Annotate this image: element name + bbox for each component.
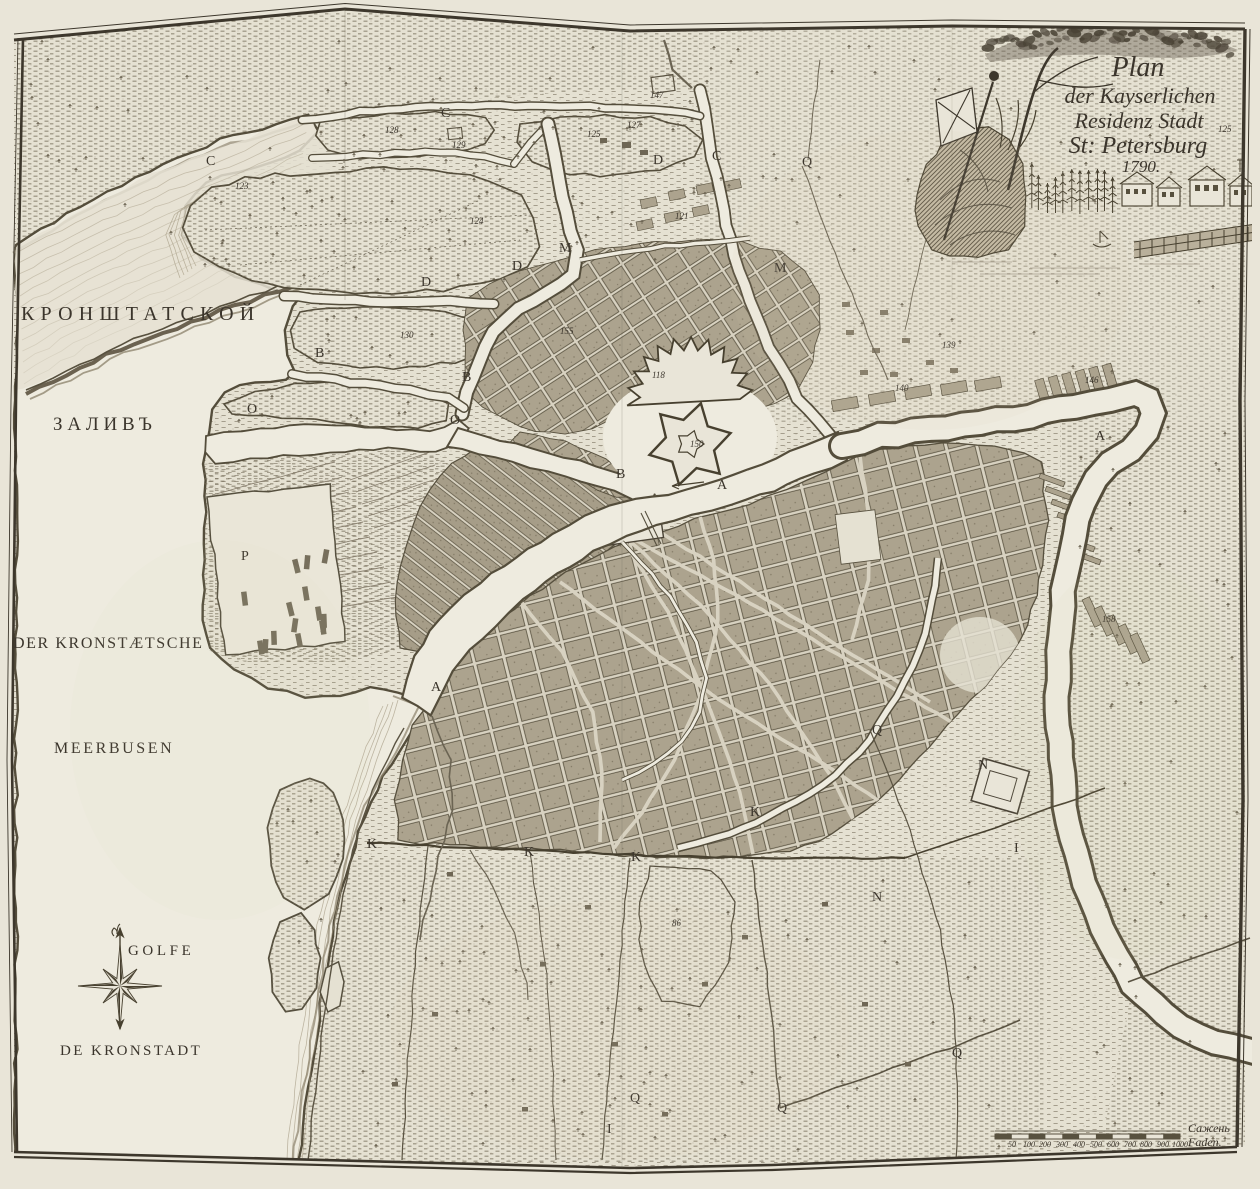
svg-text:St: Petersburg: St: Petersburg — [1069, 133, 1207, 159]
svg-text:A: A — [717, 478, 728, 493]
svg-text:B: B — [616, 467, 625, 482]
svg-text:200: 200 — [1039, 1140, 1051, 1149]
svg-text:K: K — [750, 805, 760, 820]
svg-text:128: 128 — [385, 125, 399, 135]
svg-text:1790.: 1790. — [1122, 157, 1160, 176]
svg-text:D: D — [653, 153, 663, 168]
svg-text:150: 150 — [690, 439, 704, 449]
svg-text:1000: 1000 — [1172, 1140, 1188, 1149]
svg-text:O: O — [247, 402, 257, 417]
svg-text:121: 121 — [675, 211, 689, 221]
svg-text:400: 400 — [1073, 1140, 1085, 1149]
svg-text:K: K — [367, 837, 377, 852]
svg-text:Q: Q — [872, 723, 882, 738]
svg-text:50: 50 — [1008, 1140, 1016, 1149]
svg-text:КРОНШТАТСКОЙ: КРОНШТАТСКОЙ — [21, 302, 260, 325]
svg-text:155: 155 — [560, 326, 574, 336]
svg-text:125: 125 — [1218, 124, 1232, 134]
svg-text:C: C — [441, 106, 450, 121]
svg-text:I: I — [1014, 841, 1019, 856]
svg-text:C: C — [712, 149, 721, 164]
svg-text:C: C — [206, 154, 215, 169]
svg-text:A: A — [1095, 429, 1106, 444]
svg-text:Residenz Stadt: Residenz Stadt — [1074, 108, 1205, 133]
svg-text:900: 900 — [1157, 1140, 1169, 1149]
svg-text:500: 500 — [1090, 1140, 1102, 1149]
svg-text:B: B — [315, 346, 324, 361]
svg-text:K: K — [631, 850, 641, 865]
svg-text:600: 600 — [1107, 1140, 1119, 1149]
svg-text:Сажень: Сажень — [1188, 1121, 1230, 1135]
svg-text:N: N — [978, 758, 988, 773]
svg-text:B: B — [462, 370, 471, 385]
svg-text:D: D — [421, 275, 431, 290]
svg-text:123: 123 — [235, 181, 249, 191]
svg-text:K: K — [524, 845, 534, 860]
svg-text:300: 300 — [1055, 1140, 1068, 1149]
svg-text:Q: Q — [952, 1046, 962, 1061]
svg-text:M: M — [559, 241, 572, 256]
svg-text:D: D — [512, 259, 522, 274]
svg-text:GOLFE: GOLFE — [128, 943, 194, 959]
svg-text:100: 100 — [1023, 1140, 1035, 1149]
svg-text:146: 146 — [1085, 375, 1099, 385]
svg-text:147: 147 — [650, 90, 664, 100]
svg-text:800: 800 — [1140, 1140, 1152, 1149]
svg-text:129: 129 — [452, 140, 466, 150]
svg-text:DE KRONSTADT: DE KRONSTADT — [60, 1043, 202, 1059]
svg-text:N: N — [872, 890, 882, 905]
svg-text:130: 130 — [400, 330, 414, 340]
svg-text:127: 127 — [627, 120, 641, 130]
svg-text:124: 124 — [470, 216, 484, 226]
svg-text:O: O — [450, 413, 460, 428]
svg-text:118: 118 — [652, 370, 665, 380]
svg-text:700: 700 — [1124, 1140, 1136, 1149]
svg-text:125: 125 — [587, 129, 601, 139]
svg-text:Plan: Plan — [1111, 52, 1165, 83]
svg-text:der Kayserlichen: der Kayserlichen — [1065, 83, 1216, 108]
svg-text:A: A — [431, 680, 442, 695]
svg-text:ЗАЛИВЪ: ЗАЛИВЪ — [53, 414, 157, 435]
